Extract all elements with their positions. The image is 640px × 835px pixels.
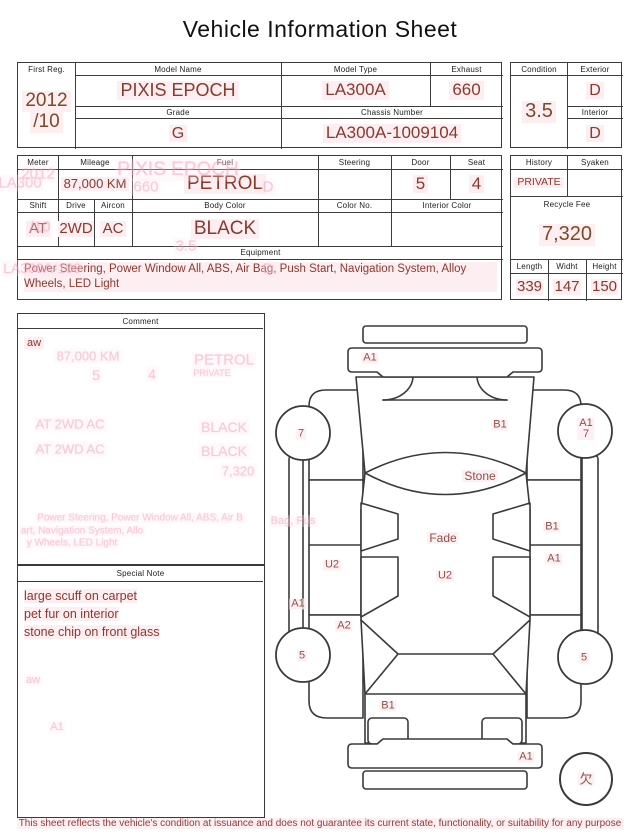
mileage-label: Mileage — [58, 156, 132, 169]
damage-code-label: 5 — [297, 651, 307, 662]
exterior-label: Exterior — [567, 63, 623, 75]
grade-value: G — [75, 118, 281, 149]
damage-code-label: U2 — [436, 571, 454, 582]
seat-text: 4 — [469, 175, 484, 193]
spec-table: Meter Mileage Fuel Steering Door Seat 87… — [17, 155, 502, 300]
damage-code-label: B1 — [379, 701, 396, 712]
condition-score: 3.5 — [522, 101, 556, 123]
model-name-value: PIXIS EPOCH — [75, 75, 281, 106]
shift-value: AT — [18, 212, 58, 246]
door-value: 5 — [391, 169, 450, 199]
aircon-text: AC — [100, 221, 127, 237]
aircon-value: AC — [94, 212, 132, 246]
condition-table: Condition 3.5 Exterior D Interior D — [510, 62, 622, 148]
color-no-value — [318, 212, 391, 246]
seat-value: 4 — [450, 169, 503, 199]
interior-value: D — [567, 118, 623, 149]
exhaust-text: 660 — [449, 81, 483, 99]
length-value: 339 — [511, 273, 548, 301]
damage-code-label: A1 — [361, 353, 378, 364]
color-no-label: Color No. — [318, 199, 391, 212]
page-title: Vehicle Information Sheet — [0, 16, 640, 43]
condition-value: 3.5 — [511, 75, 567, 149]
body-color-text: BLACK — [191, 219, 259, 240]
damage-code-label: 欠 — [577, 773, 594, 786]
fuel-label: Fuel — [132, 156, 318, 169]
recycle-fee-text: 7,320 — [539, 224, 595, 246]
width-value: 147 — [548, 273, 586, 301]
condition-label: Condition — [511, 63, 567, 75]
first-reg-year: 2012 — [22, 91, 70, 112]
chassis-number-value: LA300A-1009104 — [281, 118, 503, 149]
disclaimer-footer: This sheet reflects the vehicle's condit… — [0, 818, 640, 829]
door-text: 5 — [413, 175, 428, 193]
disclaimer-text: This sheet reflects the vehicle's condit… — [17, 818, 624, 829]
comment-text: aw — [24, 337, 44, 349]
chassis-number-text: LA300A-1009104 — [323, 124, 461, 142]
length-text: 339 — [516, 279, 543, 295]
model-name-text: PIXIS EPOCH — [117, 81, 238, 100]
chassis-number-label: Chassis Number — [281, 106, 503, 118]
aircon-label: Aircon — [94, 199, 132, 212]
model-type-text: LA300A — [322, 81, 389, 99]
damage-code-label: A1 7 — [577, 418, 594, 440]
shift-label: Shift — [18, 199, 58, 212]
exhaust-value: 660 — [430, 75, 503, 106]
interior-color-label: Interior Color — [391, 199, 503, 212]
damage-code-label: 5 — [579, 653, 589, 664]
drive-value: 2WD — [58, 212, 94, 246]
fuel-value: PETROL — [132, 169, 318, 199]
damage-code-label: Stone — [462, 470, 497, 482]
comment-label: Comment — [18, 314, 263, 328]
damage-code-label: B1 — [491, 420, 508, 431]
height-value: 150 — [586, 273, 623, 301]
special-note-label: Special Note — [18, 566, 263, 581]
exhaust-label: Exhaust — [430, 63, 503, 75]
comment-box: Comment aw — [17, 313, 265, 565]
body-color-value: BLACK — [132, 212, 318, 246]
damage-code-label: A1 — [289, 599, 306, 610]
model-type-label: Model Type — [281, 63, 430, 75]
equipment-value: Power Steering, Power Window All, ABS, A… — [18, 259, 503, 301]
syaken-label: Syaken — [567, 156, 623, 169]
drive-text: 2WD — [58, 221, 93, 237]
history-text: PRIVATE — [514, 177, 563, 188]
special-note-text: large scuff on carpet pet fur on interio… — [24, 589, 160, 639]
grade-label: Grade — [75, 106, 281, 118]
recycle-fee-label: Recycle Fee — [511, 198, 623, 211]
comment-value: aw — [24, 333, 260, 351]
history-label: History — [511, 156, 567, 169]
car-damage-diagram: A17A1 7B1StoneFadeU2U2B1A1A1A255B1A1欠 — [270, 310, 636, 810]
damage-code-label: U2 — [323, 560, 341, 571]
damage-code-label: B1 — [543, 522, 560, 533]
drive-label: Drive — [58, 199, 94, 212]
first-reg-label: First Reg. — [18, 63, 75, 75]
equipment-label: Equipment — [18, 246, 503, 259]
fuel-text: PETROL — [184, 174, 266, 195]
model-name-label: Model Name — [75, 63, 281, 75]
mileage-value: 87,000 KM — [58, 169, 132, 199]
damage-code-label: 7 — [296, 429, 306, 440]
interior-label: Interior — [567, 106, 623, 118]
first-reg-value: 2012 /10 — [18, 75, 75, 149]
shift-text: AT — [26, 221, 50, 237]
grade-text: G — [169, 125, 187, 142]
width-label: Widht — [548, 259, 586, 273]
height-label: Height — [586, 259, 623, 273]
width-text: 147 — [553, 279, 580, 295]
steering-value — [318, 169, 391, 199]
special-note-box: Special Note large scuff on carpet pet f… — [17, 565, 265, 818]
equipment-text: Power Steering, Power Window All, ABS, A… — [24, 262, 497, 292]
body-color-label: Body Color — [132, 199, 318, 212]
exterior-grade: D — [586, 82, 604, 99]
model-type-value: LA300A — [281, 75, 430, 106]
vehicle-information-sheet: Vehicle Information Sheet First Reg. 201… — [0, 0, 640, 835]
first-reg-month: /10 — [30, 112, 62, 133]
damage-code-label: A1 — [545, 554, 562, 565]
length-label: Length — [511, 259, 548, 273]
height-text: 150 — [591, 279, 618, 295]
recycle-fee-value: 7,320 — [511, 211, 623, 259]
interior-grade: D — [586, 125, 604, 142]
info-table: First Reg. 2012 /10 Model Name PIXIS EPO… — [17, 62, 502, 148]
exterior-value: D — [567, 75, 623, 106]
history-table: History Syaken PRIVATE Recycle Fee 7,320… — [510, 155, 622, 300]
damage-code-label: Fade — [427, 532, 458, 544]
steering-label: Steering — [318, 156, 391, 169]
meter-label: Meter — [18, 156, 58, 169]
damage-code-label: A2 — [335, 621, 352, 632]
seat-label: Seat — [450, 156, 503, 169]
special-note-value: large scuff on carpet pet fur on interio… — [24, 587, 260, 641]
door-label: Door — [391, 156, 450, 169]
mileage-text: 87,000 KM — [61, 177, 130, 191]
syaken-value — [567, 169, 623, 196]
interior-color-value — [391, 212, 503, 246]
meter-value — [18, 169, 58, 199]
damage-code-label: A1 — [517, 752, 534, 763]
history-value: PRIVATE — [511, 169, 567, 196]
